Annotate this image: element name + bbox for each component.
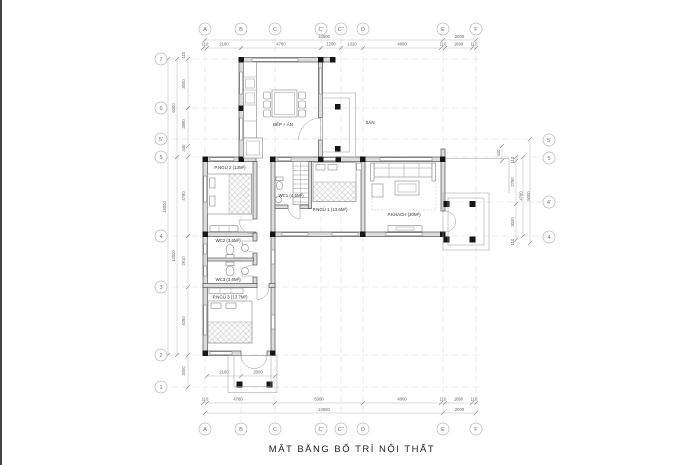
dim-label: 4780 [519,191,524,201]
dim-label: 3000 [181,79,186,89]
dim-labels-right: 440 110 2780 3000 110 4780 5000 [496,149,531,246]
axis-label: 4 [159,234,162,240]
axis-label: 7 [159,57,162,63]
dim-label: 2000 [253,370,263,375]
axis-label: B [239,427,243,433]
dim-label: 1200 [326,42,336,47]
axis-label: F [474,27,478,33]
dim-label: 110 [202,42,209,47]
room-label-bedroom1: P.NGỦ 1 (13.6M²) [313,207,348,212]
dim-label: 14500 [318,407,330,412]
axis-label: 5 [159,155,162,161]
dim-labels-left: 18000 6000 12000 110 3000 2890 440 4780 … [162,51,186,376]
dim-label: 2000 [181,366,186,376]
dim-label: 2910 [181,256,186,266]
dim-label: 1890 [454,42,464,47]
room-label-wc3: WC3 (3.6M²) [215,277,241,282]
dim-label: 110 [471,42,478,47]
axis-label: A [203,427,207,433]
dim-label: 4780 [181,191,186,201]
axis-label: C'' [338,427,344,433]
axis-bubbles-right: 5' 5 4' 4 [543,134,555,243]
dresser-bedroom2 [210,226,238,232]
axis-bubbles-bottom: A B C C' C'' D E F [199,423,482,435]
dim-label: 4780 [276,42,286,47]
room-label-wc2: WC2 (3.6M²) [215,238,241,243]
wardrobe-bedroom3 [209,288,243,294]
room-label-kitchen: BẾP + ĂN [273,122,293,127]
axis-label: 5' [159,137,163,143]
axis-label: C'' [338,27,344,33]
axis-label: C' [318,27,323,33]
room-label-wc1: WC1 (4.5M²) [278,193,304,198]
dim-label: 110 [510,238,515,245]
axis-bubbles-top: A B C C' C'' D E F [199,23,482,35]
axis-label: 4' [547,200,551,206]
dim-label: 2890 [181,119,186,129]
stairs [293,162,309,205]
dim-label: 2000 [455,34,465,39]
axis-label: 5' [547,138,551,144]
wc3-fixtures [226,262,248,276]
dining-table [264,90,306,117]
axis-label: A [203,27,207,33]
dim-label: 2180 [219,42,229,47]
kitchen-appliance-block [244,138,263,158]
axis-label: E [441,27,445,33]
living-room-furniture [371,163,437,232]
dim-label: 2780 [510,177,515,187]
axis-bubbles-left: 7 6 5' 5 4 3 2 1 [155,53,167,393]
axis-label: D [361,27,365,33]
wc1-fixtures [275,177,283,203]
dim-label: 440 [496,149,501,157]
dim-label: 1320 [347,42,357,47]
dim-label: 110 [510,156,515,163]
axis-label: C' [318,427,323,433]
room-label-bedroom3: P.NGỦ 3 (13.7M²) [213,295,248,300]
wc2-fixtures [226,245,248,259]
dim-label: 4050 [181,316,186,326]
dim-label: 4800 [397,42,407,47]
axis-label: E [441,427,445,433]
axis-label: 4 [547,235,550,241]
axis-label: 3 [159,285,162,291]
axis-label: D [361,427,365,433]
dim-label: 3000 [510,217,515,227]
dim-label: 440 [181,144,186,152]
dim-label: 18000 [162,201,167,213]
canvas-left-border [0,0,2,465]
bed-bedroom2 [208,174,252,214]
dim-label: 110 [181,51,186,58]
axis-label: 6 [159,106,162,112]
axis-label: C [273,427,277,433]
axis-label: F [474,427,478,433]
axis-label: 2 [159,353,162,359]
axis-label: 5 [547,156,550,162]
room-label-bedroom2: P.NGỦ 2 (13M²) [214,165,246,170]
dim-label: 110 [440,42,447,47]
dim-label: 6000 [171,103,176,113]
room-label-living: P.KHÁCH (20M²) [387,212,421,217]
axis-label: 1 [159,385,162,391]
dim-label: 110 [202,397,209,402]
dim-label: 4780 [233,397,243,402]
dim-label: 110 [440,397,447,402]
axis-label: B [239,27,243,33]
bed-bedroom1 [313,163,362,202]
kitchen-counter [244,62,257,138]
floor-plan-canvas: 14500 2000 110 2180 4780 1200 1320 4800 … [0,0,700,465]
dim-label: 1890 [454,397,464,402]
dim-label: 12000 [171,250,176,262]
room-label-yard: SÂN [365,120,374,125]
dim-label: 2000 [455,407,465,412]
dim-label: 5000 [526,191,531,201]
dim-label: 5300 [314,397,324,402]
floor-plan-drawing: 14500 2000 110 2180 4780 1200 1320 4800 … [0,0,700,465]
axis-label: C [273,27,277,33]
plan-title: MẶT BẰNG BỐ TRÍ NỘI THẤT [269,443,435,455]
dim-label: 4800 [397,397,407,402]
bed-bedroom3 [208,301,252,343]
dim-label: 110 [471,397,478,402]
